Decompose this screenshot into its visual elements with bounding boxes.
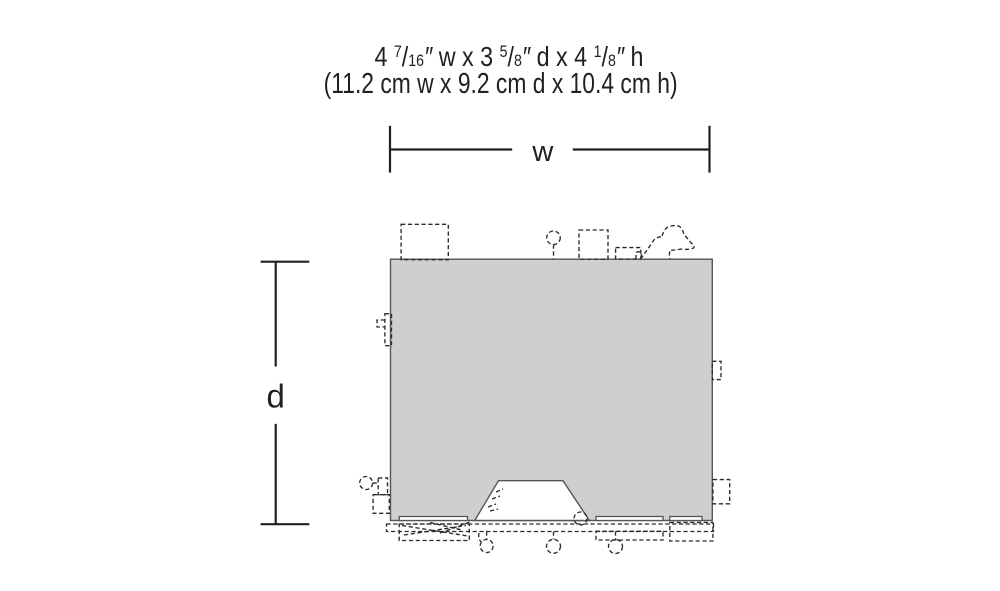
svg-text:d: d (267, 378, 285, 415)
svg-text:w: w (531, 136, 554, 168)
svg-text:(11.2 cm w x 9.2 cm d x 10.4 c: (11.2 cm w x 9.2 cm d x 10.4 cm h) (324, 69, 678, 100)
